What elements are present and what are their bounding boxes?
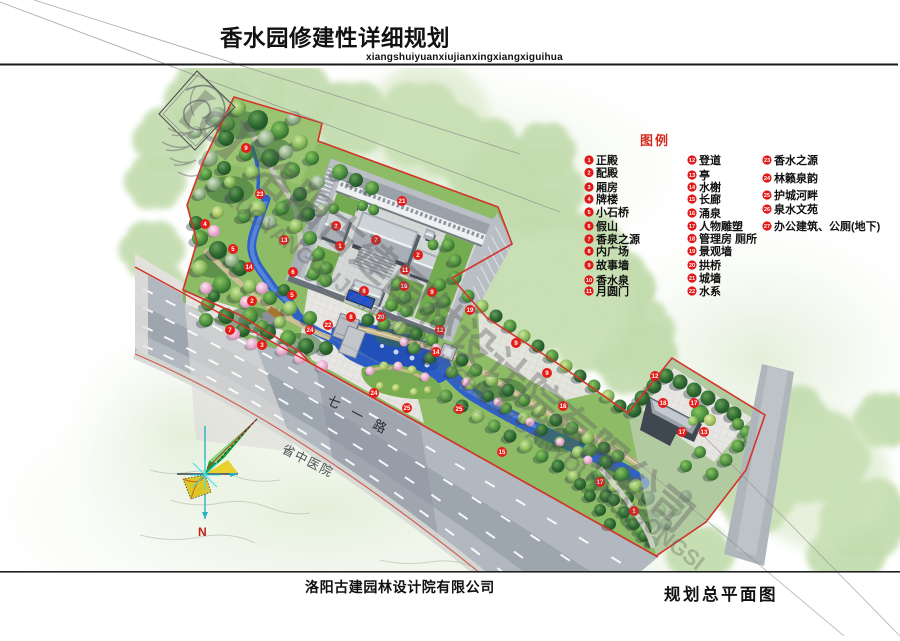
svg-text:图例: 图例 [640, 133, 670, 148]
svg-text:17: 17 [679, 429, 686, 436]
svg-text:15: 15 [689, 197, 695, 203]
svg-text:8: 8 [349, 314, 353, 321]
svg-text:12: 12 [652, 373, 659, 380]
svg-text:18: 18 [660, 400, 667, 407]
svg-text:21: 21 [399, 198, 406, 205]
svg-text:2: 2 [250, 298, 254, 305]
svg-text:景观墙: 景观墙 [698, 244, 732, 258]
svg-text:xiangshuiyuanxiujianxingxiangx: xiangshuiyuanxiujianxingxiangxiguihua [366, 52, 563, 63]
svg-text:22: 22 [325, 322, 332, 329]
svg-text:5: 5 [231, 246, 235, 253]
svg-text:6: 6 [587, 224, 590, 230]
svg-text:16: 16 [689, 211, 695, 217]
svg-text:3: 3 [587, 185, 590, 191]
svg-text:7: 7 [587, 237, 590, 243]
svg-text:9: 9 [514, 340, 518, 347]
svg-text:香泉之源: 香泉之源 [595, 232, 640, 246]
svg-text:5: 5 [290, 292, 294, 299]
svg-text:26: 26 [764, 207, 770, 213]
svg-text:人物雕塑: 人物雕塑 [699, 219, 743, 233]
svg-text:长廊: 长廊 [699, 192, 721, 206]
svg-text:17: 17 [689, 224, 695, 230]
svg-text:7: 7 [228, 327, 232, 334]
svg-text:9: 9 [587, 263, 590, 269]
svg-text:内广场: 内广场 [596, 244, 629, 258]
svg-text:配殿: 配殿 [596, 166, 619, 180]
svg-text:13: 13 [701, 429, 708, 436]
svg-text:17: 17 [691, 400, 698, 407]
svg-text:2: 2 [587, 171, 590, 177]
svg-text:护城河畔: 护城河畔 [774, 188, 818, 202]
svg-text:4: 4 [203, 221, 207, 228]
svg-text:15: 15 [499, 449, 506, 456]
svg-text:2: 2 [416, 252, 420, 259]
svg-text:24: 24 [764, 176, 771, 182]
svg-text:城墙: 城墙 [699, 271, 721, 285]
svg-text:香水园修建性详细规划: 香水园修建性详细规划 [220, 25, 450, 51]
svg-text:香水之源: 香水之源 [773, 153, 818, 167]
svg-text:6: 6 [291, 269, 295, 276]
svg-text:假山: 假山 [596, 219, 618, 233]
svg-text:27: 27 [764, 224, 770, 230]
svg-text:牌楼: 牌楼 [596, 192, 618, 206]
svg-text:月圆门: 月圆门 [595, 284, 629, 298]
svg-text:小石桥: 小石桥 [595, 205, 630, 219]
svg-text:泉水文苑: 泉水文苑 [773, 202, 818, 216]
svg-text:厢房: 厢房 [596, 180, 618, 194]
svg-text:23: 23 [764, 158, 770, 164]
svg-text:8: 8 [587, 249, 590, 255]
svg-text:正殿: 正殿 [596, 154, 619, 167]
svg-text:拱桥: 拱桥 [699, 258, 722, 272]
svg-text:洛阳古建园林设计院有限公司: 洛阳古建园林设计院有限公司 [305, 579, 495, 595]
svg-text:登道: 登道 [698, 153, 721, 167]
svg-text:水榭: 水榭 [699, 180, 721, 194]
svg-text:11: 11 [586, 289, 592, 295]
svg-text:亭: 亭 [699, 168, 710, 182]
svg-text:21: 21 [689, 276, 695, 282]
svg-text:涌泉: 涌泉 [699, 206, 722, 220]
svg-text:10: 10 [586, 278, 592, 284]
svg-text:14: 14 [246, 264, 253, 271]
svg-text:水系: 水系 [699, 284, 721, 298]
svg-text:管理房 厕所: 管理房 厕所 [699, 232, 757, 246]
svg-text:19: 19 [689, 249, 695, 255]
svg-text:N: N [198, 525, 207, 539]
svg-text:13: 13 [689, 173, 695, 179]
svg-text:办公建筑、公厕(地下): 办公建筑、公厕(地下) [774, 219, 881, 233]
svg-text:规划总平面图: 规划总平面图 [664, 584, 778, 604]
svg-text:25: 25 [764, 193, 770, 199]
svg-text:25: 25 [404, 405, 411, 412]
svg-text:14: 14 [689, 185, 696, 191]
svg-text:22: 22 [689, 289, 695, 295]
svg-text:18: 18 [689, 237, 695, 243]
svg-text:故事墙: 故事墙 [596, 258, 629, 272]
svg-text:林籁泉韵: 林籁泉韵 [774, 171, 818, 185]
svg-text:12: 12 [689, 158, 695, 164]
svg-text:25: 25 [456, 406, 463, 413]
svg-text:3: 3 [260, 342, 264, 349]
svg-text:1: 1 [587, 158, 590, 164]
svg-text:香水泉: 香水泉 [595, 273, 630, 287]
svg-text:24: 24 [371, 390, 378, 397]
svg-text:5: 5 [587, 210, 590, 216]
svg-text:20: 20 [689, 263, 695, 269]
